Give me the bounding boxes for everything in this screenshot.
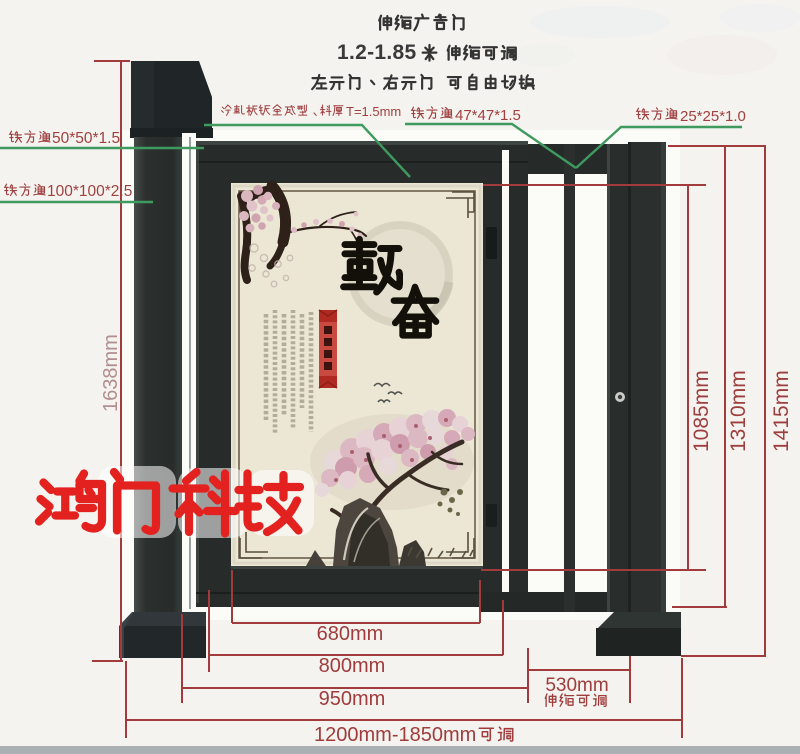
svg-text:1310mm: 1310mm xyxy=(727,370,750,452)
svg-text:25*25*1.0: 25*25*1.0 xyxy=(680,108,746,125)
svg-text:1200mm-1850mm: 1200mm-1850mm xyxy=(314,724,476,746)
svg-text:950mm: 950mm xyxy=(319,688,386,710)
svg-text:1.2-1.85: 1.2-1.85 xyxy=(337,41,416,64)
svg-text:1415mm: 1415mm xyxy=(770,370,793,452)
svg-text:680mm: 680mm xyxy=(317,623,384,645)
svg-text:47*47*1.5: 47*47*1.5 xyxy=(455,107,521,124)
svg-text:1638mm: 1638mm xyxy=(100,334,122,412)
svg-text:50*50*1.5: 50*50*1.5 xyxy=(52,130,120,147)
svg-text:T=1.5mm: T=1.5mm xyxy=(346,104,401,119)
svg-text:1085mm: 1085mm xyxy=(690,370,713,452)
svg-text:530mm: 530mm xyxy=(545,675,608,696)
svg-text:800mm: 800mm xyxy=(319,655,386,677)
svg-text:100*100*2.5: 100*100*2.5 xyxy=(47,183,132,200)
